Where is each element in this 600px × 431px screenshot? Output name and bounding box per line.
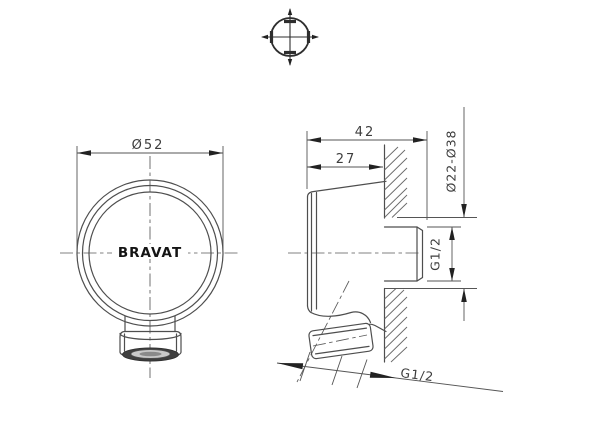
dim-inlet-thread: G1/2 [427, 227, 461, 281]
wall-section [385, 145, 408, 362]
outlet-thread-label: G1/2 [400, 365, 435, 384]
brand-logo: BRAVAT [118, 245, 182, 261]
total-depth-label: 42 [355, 125, 376, 140]
projection-symbol-icon [261, 8, 319, 66]
dim-depth-42: 42 [307, 125, 427, 220]
nut-cross-centerline [313, 335, 367, 346]
inlet-thread-label: G1/2 [428, 237, 443, 271]
drawing-page: Ø52 BRAVAT [0, 0, 600, 431]
wall-hatch-upper [385, 147, 408, 218]
front-view: Ø52 BRAVAT [60, 138, 240, 378]
dim-wall-hole-range: Ø22-Ø38 [385, 107, 477, 321]
front-depth-label: 27 [336, 152, 357, 167]
wall-hatch-lower [385, 289, 408, 363]
dim-outlet-thread: G1/2 [277, 352, 503, 392]
side-view: 42 27 Ø22-Ø38 G1/2 [277, 107, 503, 392]
technical-drawing: Ø52 BRAVAT [0, 0, 600, 431]
wall-hole-range-label: Ø22-Ø38 [444, 130, 459, 193]
escutcheon-profile [308, 181, 387, 331]
inlet-nipple [385, 227, 423, 281]
diameter-dim-label: Ø52 [132, 138, 165, 153]
dim-depth-27: 27 [307, 152, 383, 170]
side-outlet-nut [308, 323, 373, 359]
